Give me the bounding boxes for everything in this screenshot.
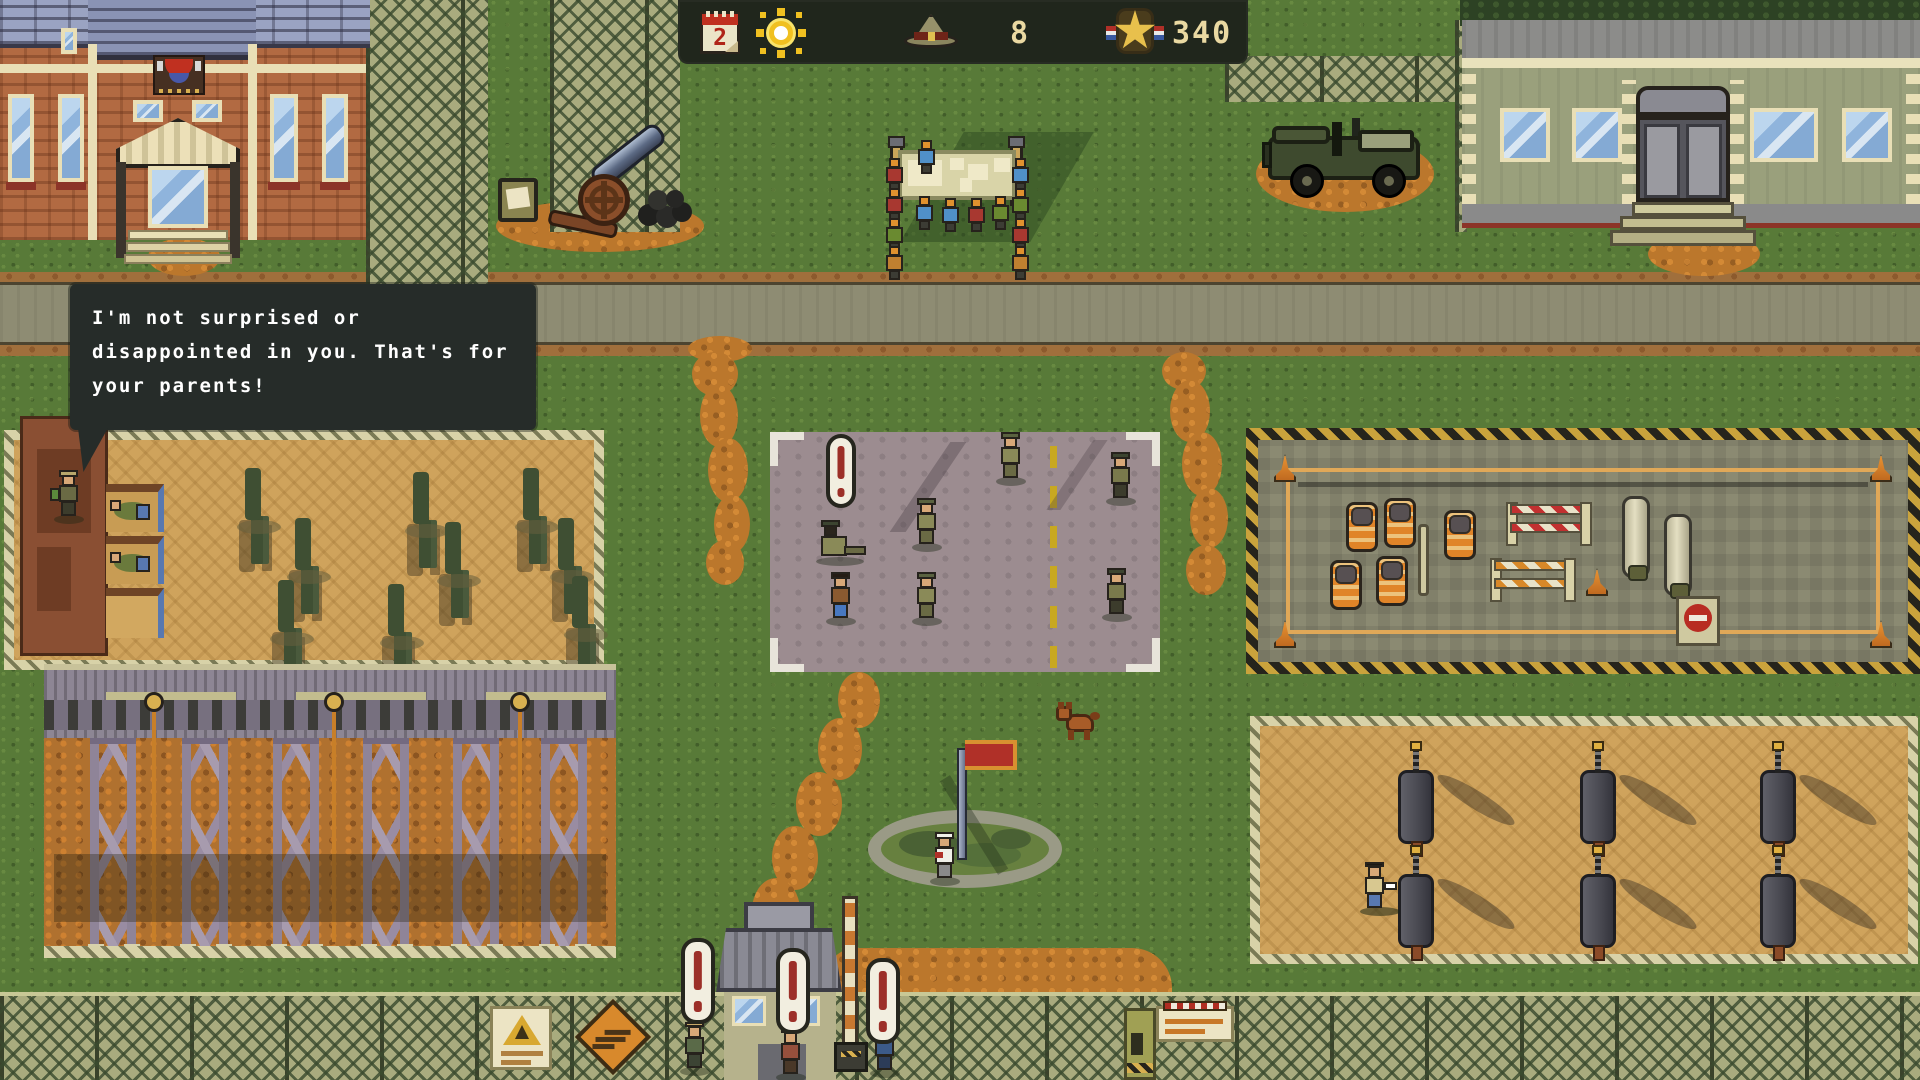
barrel[interactable] <box>1330 560 1362 610</box>
hq-sill <box>6 182 36 190</box>
crawl-obstacle <box>445 522 461 574</box>
recruit-sitting[interactable] <box>820 524 842 562</box>
wall-shadow <box>54 854 606 922</box>
barracks-window <box>1572 108 1622 162</box>
dirt-path <box>708 438 748 502</box>
barracks-window <box>1750 108 1818 162</box>
wooden-platform[interactable] <box>20 416 108 656</box>
barracks-steps <box>1620 216 1746 230</box>
climbing-frames-area[interactable] <box>44 664 616 960</box>
hq-sill <box>268 182 300 190</box>
hq-pilaster <box>88 44 97 240</box>
punching-bag[interactable] <box>1580 874 1616 948</box>
striped-awning <box>1163 1001 1227 1011</box>
hurdle-orange[interactable] <box>1490 558 1576 602</box>
recruit[interactable] <box>916 502 938 548</box>
dirt-path <box>796 772 842 836</box>
civilian[interactable] <box>968 198 985 234</box>
barrel[interactable] <box>1384 498 1416 548</box>
wooden-plank[interactable] <box>1418 524 1429 596</box>
hq-porch <box>116 118 240 252</box>
warning-sign[interactable] <box>490 1006 552 1070</box>
dirt-path <box>706 540 744 585</box>
calendar-icon[interactable]: 2 <box>700 12 740 54</box>
civilian[interactable] <box>886 246 903 282</box>
crawl-obstacle <box>572 576 588 628</box>
training-bag[interactable] <box>1622 496 1650 578</box>
barracks-steps <box>1610 230 1756 246</box>
rope-medallion <box>144 692 164 712</box>
barracks-roof <box>1462 20 1920 58</box>
board-face <box>898 150 1016 200</box>
storage-yard[interactable] <box>1246 428 1920 674</box>
recruitment-board[interactable] <box>872 112 1052 270</box>
speech-bubble: I'm not surprised or disappointed in you… <box>70 284 536 430</box>
rope-medallion <box>324 692 344 712</box>
sun-icon[interactable] <box>758 10 804 56</box>
hq-sill <box>56 182 86 190</box>
punching-bag[interactable] <box>1580 770 1616 844</box>
situp-station[interactable] <box>106 484 164 532</box>
civilian[interactable] <box>992 196 1009 232</box>
exclamation-icon[interactable] <box>681 938 715 1024</box>
speech-line: your parents! <box>92 369 514 403</box>
cannon-wheel <box>578 174 630 226</box>
punching-bag[interactable] <box>1398 874 1434 948</box>
hq-pilaster <box>248 44 257 240</box>
recruit-hat-icon[interactable] <box>904 14 958 52</box>
rope-line <box>1286 468 1880 634</box>
pad-corner <box>770 638 804 672</box>
pad-corner <box>1126 638 1160 672</box>
speech-line: disappointed in you. That's for <box>92 335 514 369</box>
civilian[interactable] <box>942 198 959 234</box>
star-medal-icon[interactable] <box>1106 6 1164 58</box>
dirt-path <box>700 385 738 447</box>
notice-sign[interactable] <box>1156 1006 1234 1042</box>
barracks-door[interactable] <box>1644 124 1680 198</box>
speech-line: I'm not surprised or <box>92 301 514 335</box>
crawl-obstacle <box>413 472 429 524</box>
barrel[interactable] <box>1376 556 1408 606</box>
punching-bag[interactable] <box>1398 770 1434 844</box>
rope-medallion <box>510 692 530 712</box>
crawl-obstacle <box>295 518 311 570</box>
dog[interactable] <box>1056 702 1100 742</box>
rope-shadow <box>1298 482 1868 487</box>
drill-instructor[interactable] <box>1110 456 1132 502</box>
dirt-path <box>1182 432 1222 496</box>
barracks-eave <box>1462 58 1920 68</box>
cannon-monument[interactable] <box>490 128 710 252</box>
hq-window <box>270 94 298 182</box>
pad-yellow-line <box>1050 436 1057 668</box>
hq-sill <box>320 182 350 190</box>
crawl-obstacle <box>245 468 261 520</box>
no-entry-sign[interactable] <box>1676 596 1720 646</box>
civilian[interactable] <box>1012 246 1029 282</box>
hq-banner <box>153 55 205 95</box>
headquarters-building[interactable] <box>0 0 372 272</box>
drill-sergeant[interactable] <box>58 474 80 520</box>
barrier-base <box>834 1042 868 1072</box>
porch-door[interactable] <box>148 166 208 228</box>
pad-corner <box>770 432 804 466</box>
crawl-obstacle <box>558 518 574 570</box>
barracks-quoin <box>1906 68 1920 204</box>
civilian-visitor[interactable] <box>780 1032 802 1078</box>
crawl-obstacle <box>523 468 539 520</box>
gate-booth[interactable] <box>1124 1008 1156 1080</box>
hq-window <box>322 94 348 182</box>
exclamation-icon[interactable] <box>866 958 900 1044</box>
ammo-crate <box>498 178 538 222</box>
fence-bottom <box>0 992 1920 1080</box>
punching-bag-field[interactable] <box>1250 716 1918 964</box>
fence-strip <box>366 0 488 286</box>
hq-window <box>8 94 34 182</box>
barracks-building[interactable] <box>1462 20 1920 272</box>
jeep-wheel <box>1290 164 1324 198</box>
military-jeep[interactable] <box>1262 96 1426 210</box>
barrier-pole[interactable] <box>842 896 858 1046</box>
guardhouse-ridge <box>744 902 814 932</box>
drill-instructor[interactable] <box>1106 572 1128 618</box>
situp-station[interactable] <box>106 536 164 584</box>
crawl-obstacle <box>278 580 294 632</box>
barracks-window <box>1842 108 1892 162</box>
civilian[interactable] <box>916 196 933 232</box>
training-bag[interactable] <box>1664 514 1692 596</box>
barracks-door-canopy <box>1636 86 1730 116</box>
barracks-door[interactable] <box>1686 124 1722 198</box>
recruit-count: 8 <box>1010 16 1030 51</box>
recruit[interactable] <box>916 576 938 622</box>
exclamation-icon[interactable] <box>776 948 810 1034</box>
barracks-window <box>1500 108 1550 162</box>
barracks-door-quoin <box>1730 80 1744 204</box>
situp-station-empty[interactable] <box>106 588 164 638</box>
hurdle-red[interactable] <box>1506 502 1592 546</box>
game-viewport: I'm not surprised or disappointed in you… <box>0 0 1920 1080</box>
crawl-obstacle <box>388 584 404 636</box>
punching-bag[interactable] <box>1760 874 1796 948</box>
camp-flag[interactable] <box>965 740 1017 770</box>
hq-window <box>58 94 84 182</box>
civilian[interactable] <box>918 140 935 176</box>
recruit[interactable] <box>1000 436 1022 482</box>
exclamation-icon[interactable] <box>826 434 856 508</box>
barracks-quoin <box>1462 68 1476 204</box>
hud-bar: 2 8 340 <box>678 0 1248 64</box>
officer[interactable] <box>934 836 956 882</box>
barrel[interactable] <box>1444 510 1476 560</box>
dirt-path <box>818 718 862 780</box>
cannonball-pile <box>638 190 694 228</box>
barracks-steps <box>1632 202 1734 216</box>
civilian-boxer[interactable] <box>1364 866 1386 912</box>
punching-bag[interactable] <box>1760 770 1796 844</box>
hq-attic-window <box>61 28 77 54</box>
score-value: 340 <box>1172 16 1232 51</box>
barrel[interactable] <box>1346 502 1378 552</box>
dirt-path <box>1190 488 1228 548</box>
civilian-recruit[interactable] <box>830 576 852 622</box>
jeep-wheel <box>1372 164 1406 198</box>
hud-day-value: 2 <box>703 25 737 51</box>
hq-gable-roof <box>88 0 256 60</box>
climb-border <box>44 946 616 958</box>
barracks-door-quoin <box>1622 80 1636 204</box>
boxing-glove-icon <box>1384 882 1397 890</box>
recruit-waiting[interactable] <box>684 1026 706 1072</box>
dirt-path <box>1186 545 1226 595</box>
